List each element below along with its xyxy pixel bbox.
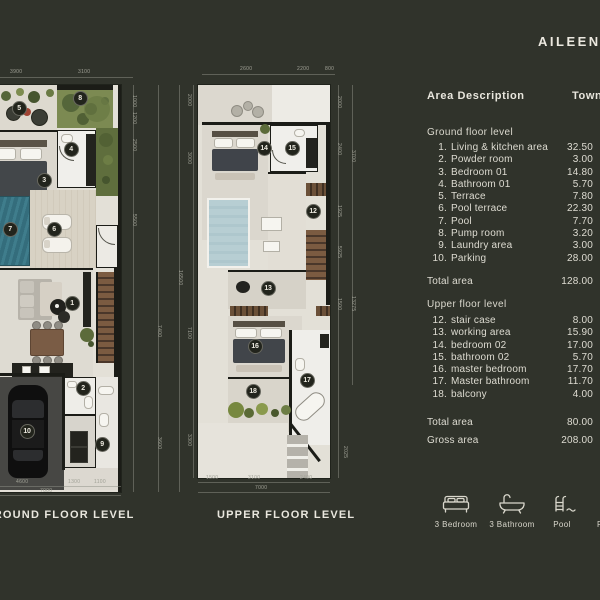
sofa-cushion [20,308,34,318]
lower-terrace [198,423,288,478]
table-decor [55,304,59,308]
bathroom-vanity [306,138,317,168]
row-number: 14. [427,340,447,352]
table-row: 8.Pump room3.20 [427,228,593,240]
room-badge-living: 1 [65,296,80,311]
row-name: Laundry area [451,240,512,252]
dim-label: 3000 [186,152,192,164]
section-label-ground: Ground floor level [427,127,513,138]
dim-label: 2500 [131,139,137,151]
row-value: 3.00 [573,154,593,165]
bed-pillow [235,328,257,338]
table-row: 14.bedroom 0217.00 [427,340,593,352]
kitchen-counter [83,272,91,327]
basin-icon [98,386,114,395]
upper-staircase [306,230,326,280]
upper-area-table: 12.stair case8.00 13.working area15.90 1… [427,315,593,401]
row-number: 18. [427,389,447,401]
room-badge-working: 13 [261,281,276,296]
row-name: Master bathroom [451,376,530,388]
table-row: 17.Master bathroom11.70 [427,376,593,388]
dim-label: 2200 [297,66,309,72]
bed-duvet [212,149,258,171]
dim-label: 4600 [16,479,28,485]
dim-label: 7000 [255,485,267,491]
row-value: 11.70 [568,376,593,387]
row-name: Pump room [451,228,505,240]
bed-headboard [0,140,47,147]
legend-bedrooms: 3 Bedroom [428,492,484,529]
ground-area-table: 1.Living & kitchen area32.50 2.Powder ro… [427,142,593,265]
total-label: Total area [427,417,473,428]
row-name: Bathroom 01 [451,179,510,191]
cabinet-unit [287,435,308,478]
car-icon [596,492,600,516]
legend-pool: Pool [534,492,590,529]
dimension-line [352,85,353,385]
dim-label: 2600 [240,66,252,72]
ground-plan-label: GROUND FLOOR LEVEL [0,509,135,521]
dim-label: 3100 [248,475,260,481]
dimension-line [202,74,335,75]
upper-total-row: Total area 80.00 [427,417,593,428]
room-badge-staircase: 12 [306,204,321,219]
dimension-line [198,482,330,483]
row-number: 3. [427,167,447,179]
room-badge-masterbathroom: 17 [300,373,315,388]
dim-label: 1500 [206,475,218,481]
table-row: 15.bathroom 025.70 [427,352,593,364]
dim-label: 3900 [10,69,22,75]
dim-label: 3700 [350,150,356,162]
toilet-icon [294,129,305,137]
row-name: stair case [451,315,496,327]
row-value: 15.90 [567,327,593,338]
dim-label: 3100 [78,69,90,75]
room-badge-bedroom01: 3 [37,173,52,188]
row-number: 10. [427,253,447,265]
pool-icon [546,492,578,516]
row-value: 7.80 [573,191,593,202]
dim-label: 7000 [40,488,52,494]
toilet-icon [99,413,109,427]
dim-label: 2025 [342,446,348,458]
bed-bench [215,173,255,180]
row-name: Pool terrace [451,203,507,215]
toilet-icon [295,358,305,371]
dim-label: 16500 [177,270,183,285]
legend-bathrooms: 3 Bathroom [484,492,540,529]
row-number: 16. [427,364,447,376]
dim-label: 2000 [336,96,342,108]
balcony-greenery-icon [228,402,244,418]
plant-icon [260,124,270,134]
row-name: master bedroom [451,364,527,376]
row-value: 3.00 [573,240,593,251]
dim-label: 5500 [131,214,137,226]
row-number: 2. [427,154,447,166]
dim-label: 3300 [186,434,192,446]
upper-plan-label: UPPER FLOOR LEVEL [217,509,355,521]
planter-icon [31,109,48,126]
total-value: 80.00 [567,417,593,428]
plant-icon [80,328,94,342]
row-number: 15. [427,352,447,364]
row-value: 22.30 [567,203,593,214]
dimension-line [0,495,121,496]
wardrobe [306,183,326,196]
toilet-icon [84,396,93,409]
row-name: bedroom 02 [451,340,506,352]
row-value: 32.50 [567,142,593,153]
divider-wall [62,375,65,470]
legend-label: 3 Bedroom [428,520,484,529]
planter-box [261,217,282,231]
row-value: 14.80 [567,167,593,178]
dim-label: 1500 [336,298,342,310]
bed-headboard [212,131,258,137]
dimension-line [0,77,133,78]
car-rear-window [13,450,43,461]
dim-label: 7100 [186,327,192,339]
room-badge-terrace: 5 [12,101,27,116]
table-row: 10.Parking28.00 [427,253,593,265]
row-value: 7.70 [573,216,593,227]
desk-chair [236,281,250,293]
table-row: 3.Bedroom 0114.80 [427,167,593,179]
row-value: 17.70 [567,364,593,375]
decor-stone [231,105,243,117]
row-value: 5.70 [573,179,593,190]
sofa-cushion [20,295,34,307]
table-row: 7.Pool7.70 [427,216,593,228]
dim-label: 3600 [156,437,162,449]
table-row: 5.Terrace7.80 [427,191,593,203]
room-badge-pool: 7 [3,222,18,237]
floorplan-sheet: 1 2 3 4 5 6 7 8 9 10 3900 3100 4600 1300… [0,0,600,600]
row-number: 5. [427,191,447,203]
row-number: 1. [427,142,447,154]
bed-pillow [236,138,255,148]
room-badge-pumproom: 8 [73,91,88,106]
dim-label: 2400 [336,143,342,155]
room-badge-bathroom02: 15 [285,141,300,156]
room-badge-powder: 2 [76,381,91,396]
upper-top-white-area [272,85,330,125]
dryer-icon [70,447,88,463]
column-header-area: Area Description [427,90,525,102]
project-title: AILEEN P [538,34,600,49]
dimension-line [179,85,180,492]
dimension-line [0,486,121,487]
table-row: 1.Living & kitchen area32.50 [427,142,593,154]
table-row: 12.stair case8.00 [427,315,593,327]
bed-pillow [0,148,16,160]
dining-table [30,329,64,356]
car-windshield [12,400,44,418]
planter-box [263,241,280,252]
bed-bench [236,365,282,372]
table-row: 16.master bedroom17.70 [427,364,593,376]
room-badge-balcony: 18 [246,384,261,399]
row-value: 28.00 [567,253,593,264]
row-name: Terrace [451,191,486,203]
dim-label: 2000 [186,94,192,106]
dim-label: 1100 [94,479,106,485]
row-name: Living & kitchen area [451,142,548,154]
legend-label: 3 Bathroom [484,520,540,529]
dim-label: 1200 [131,112,137,124]
dim-label: 2400 [300,475,312,481]
row-number: 7. [427,216,447,228]
row-value: 8.00 [573,315,593,326]
tree-icon [84,96,110,122]
row-name: Parking [451,253,486,265]
ground-total-row: Total area 128.00 [427,276,593,287]
greenery-icon [99,133,113,147]
dim-label: 7400 [156,325,162,337]
decor-stone [252,106,264,118]
table-row: 6.Pool terrace22.30 [427,203,593,215]
row-number: 6. [427,203,447,215]
gross-value: 208.00 [561,435,593,446]
wardrobe [316,306,330,316]
gross-label: Gross area [427,435,478,446]
row-name: working area [451,327,511,339]
pool-void [207,198,250,268]
legend-label: Parking [584,520,600,529]
room-badge-parking: 10 [20,424,35,439]
room-badge-bedroom02: 14 [257,141,272,156]
column-header-type: Townhouse [572,90,600,102]
dim-label: 1300 [68,479,80,485]
row-number: 13. [427,327,447,339]
bed-pillow [214,138,233,148]
dim-label: 800 [325,66,334,72]
row-number: 9. [427,240,447,252]
table-row: 4.Bathroom 015.70 [427,179,593,191]
table-row: 2.Powder room3.00 [427,154,593,166]
legend-parking: Parking [584,492,600,529]
bed-pillow [260,328,282,338]
row-number: 12. [427,315,447,327]
row-number: 4. [427,179,447,191]
row-name: bathroom 02 [451,352,509,364]
room-badge-laundry: 9 [95,437,110,452]
room-badge-masterbedroom: 16 [248,339,263,354]
dimension-line [193,85,194,478]
total-label: Total area [427,276,473,287]
bed-pillow [20,148,42,160]
table-row: 18.balcony4.00 [427,389,593,401]
row-name: balcony [451,389,487,401]
bathroom-vanity [86,134,96,186]
row-name: Bedroom 01 [451,167,507,179]
row-number: 8. [427,228,447,240]
gross-area-row: Gross area 208.00 [427,435,593,446]
right-wall [118,85,121,492]
legend-label: Pool [534,520,590,529]
dim-label: 1000 [131,95,137,107]
total-value: 128.00 [561,276,593,287]
stair-wall [326,125,330,305]
row-value: 5.70 [573,352,593,363]
table-row: 9.Laundry area3.00 [427,240,593,252]
room-badge-bathroom01: 4 [64,142,79,157]
row-value: 4.00 [573,389,593,400]
bathtub-icon [496,492,528,516]
dim-label: 5925 [336,246,342,258]
lounger-pillow [44,240,50,248]
row-value: 3.20 [573,228,593,239]
row-name: Pool [451,216,472,228]
washer-icon [70,431,88,447]
bed-headboard [233,321,285,327]
section-label-upper: Upper floor level [427,299,507,310]
table-row: 13.working area15.90 [427,327,593,339]
row-name: Powder room [451,154,513,166]
dimension-line [158,85,159,492]
staircase [96,272,116,363]
dim-label: 1925 [336,205,342,217]
sofa-cushion [20,281,34,293]
dimension-line [198,492,330,493]
room-badge-poolterrace: 6 [47,222,62,237]
bed-icon [440,492,472,516]
divider-wall [0,373,65,376]
bathroom-vanity [320,334,329,348]
wardrobe [230,306,268,316]
row-number: 17. [427,376,447,388]
row-value: 17.00 [567,340,593,351]
dim-label: 13275 [350,296,356,311]
